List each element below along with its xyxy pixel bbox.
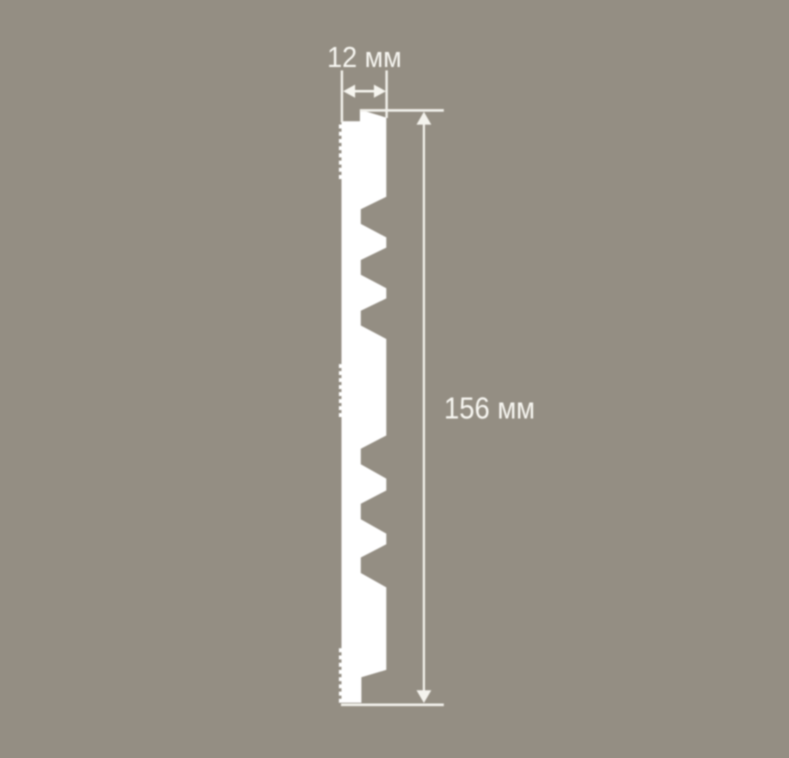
svg-text:12 мм: 12 мм <box>327 42 402 74</box>
svg-text:156 мм: 156 мм <box>444 391 535 426</box>
